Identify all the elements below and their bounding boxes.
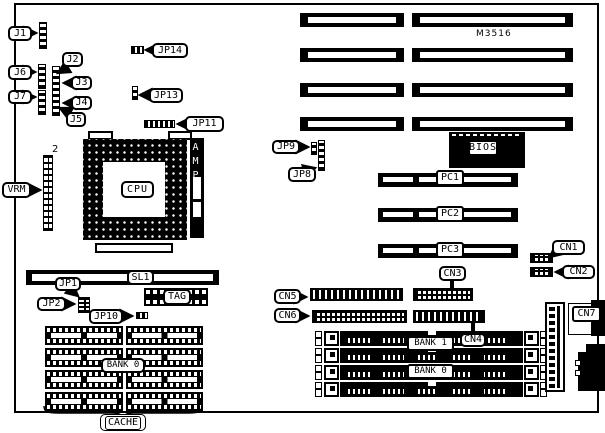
motherboard-diagram: M3516 AMP 2 <box>0 0 605 433</box>
bios-pin-row <box>452 134 522 136</box>
cn6-connector <box>312 310 407 323</box>
jp10-jumper <box>136 312 148 319</box>
j1-jumper <box>39 22 47 49</box>
label-j7: J7 <box>8 90 32 104</box>
jp9-jumper <box>311 142 317 155</box>
isa-slot-5 <box>412 13 573 27</box>
isa-slot-groove <box>308 87 396 93</box>
cache-chip <box>45 326 123 345</box>
label-cpu: CPU <box>121 181 154 198</box>
isa-slot-groove <box>308 17 396 23</box>
keyboard-connector <box>578 352 605 391</box>
cn2-connector <box>530 267 553 277</box>
isa-slot-1 <box>300 13 404 27</box>
keyboard-connector-pin <box>575 370 581 376</box>
label-jp9: JP9 <box>272 140 300 154</box>
jp13-jumper <box>132 86 138 100</box>
label-vrm: VRM <box>2 182 31 198</box>
label-sl1: SL1 <box>127 270 154 285</box>
label-cn7: CN7 <box>572 306 601 322</box>
label-pc1: PC1 <box>436 170 464 186</box>
label-bank0-cache: BANK 0 <box>101 358 145 373</box>
label-cn4: CN4 <box>460 333 486 347</box>
label-jp13: JP13 <box>149 88 183 103</box>
isa-slot-3 <box>300 83 404 97</box>
jp11-jumper <box>144 120 175 128</box>
isa-slot-4 <box>300 117 404 131</box>
keyboard-connector-pin <box>575 360 581 366</box>
isa-slot-8 <box>412 117 573 131</box>
label-j5: J5 <box>66 112 86 127</box>
vrm-pin2-text: 2 <box>52 145 58 155</box>
label-j2: J2 <box>62 52 83 67</box>
isa-slot-groove <box>420 87 565 93</box>
isa-slot-groove <box>420 52 565 58</box>
label-cn2: CN2 <box>562 265 595 279</box>
label-j6: J6 <box>8 65 32 80</box>
label-j3: J3 <box>71 76 92 90</box>
label-j1: J1 <box>8 26 32 41</box>
cache-chip <box>126 326 203 345</box>
cache-chip <box>45 392 123 411</box>
label-jp2: JP2 <box>37 297 66 311</box>
label-j4: J4 <box>71 96 92 110</box>
label-cache: CACHE <box>100 414 146 431</box>
isa-slot-2 <box>300 48 404 62</box>
label-jp8: JP8 <box>288 167 316 182</box>
jp1-jp2-jumper-block <box>78 297 90 313</box>
cn5-connector <box>310 288 403 301</box>
label-bios: BIOS <box>468 140 498 156</box>
label-bank0-simm: BANK 0 <box>407 364 454 379</box>
label-pc3: PC3 <box>436 242 464 258</box>
simm-slot-4 <box>315 382 547 397</box>
isa-slot-7 <box>412 83 573 97</box>
label-cn6: CN6 <box>274 308 301 323</box>
label-jp10: JP10 <box>89 309 123 324</box>
cache-chip <box>126 392 203 411</box>
label-tag: TAG <box>163 289 191 305</box>
chipset-model-text: M3516 <box>476 30 512 39</box>
jp14-jumper <box>131 46 144 54</box>
vrm-socket <box>43 155 53 231</box>
label-cn5: CN5 <box>274 289 301 304</box>
j7-jumper <box>38 90 46 115</box>
isa-slot-groove <box>308 52 396 58</box>
label-pc2: PC2 <box>436 206 464 222</box>
isa-slot-6 <box>412 48 573 62</box>
label-jp1: JP1 <box>55 277 81 291</box>
isa-slot-groove <box>420 17 565 23</box>
isa-slot-groove <box>420 121 565 127</box>
label-jp11: JP11 <box>185 116 224 132</box>
jp8-jumper <box>318 140 325 171</box>
amp-regulator: AMP <box>190 138 204 238</box>
isa-slot-groove <box>308 121 396 127</box>
label-jp14: JP14 <box>152 43 188 58</box>
cn3-connector <box>413 288 473 301</box>
cn4-connector <box>413 310 485 323</box>
j2-j5-jumper-strip <box>52 66 60 116</box>
cn1-connector <box>530 253 553 263</box>
j6-jumper <box>38 64 46 89</box>
label-bank1: BANK 1 <box>407 336 454 351</box>
power-connector <box>545 302 565 392</box>
label-cn1: CN1 <box>552 240 585 255</box>
socket-lever <box>95 243 173 253</box>
label-cn3: CN3 <box>439 266 466 281</box>
